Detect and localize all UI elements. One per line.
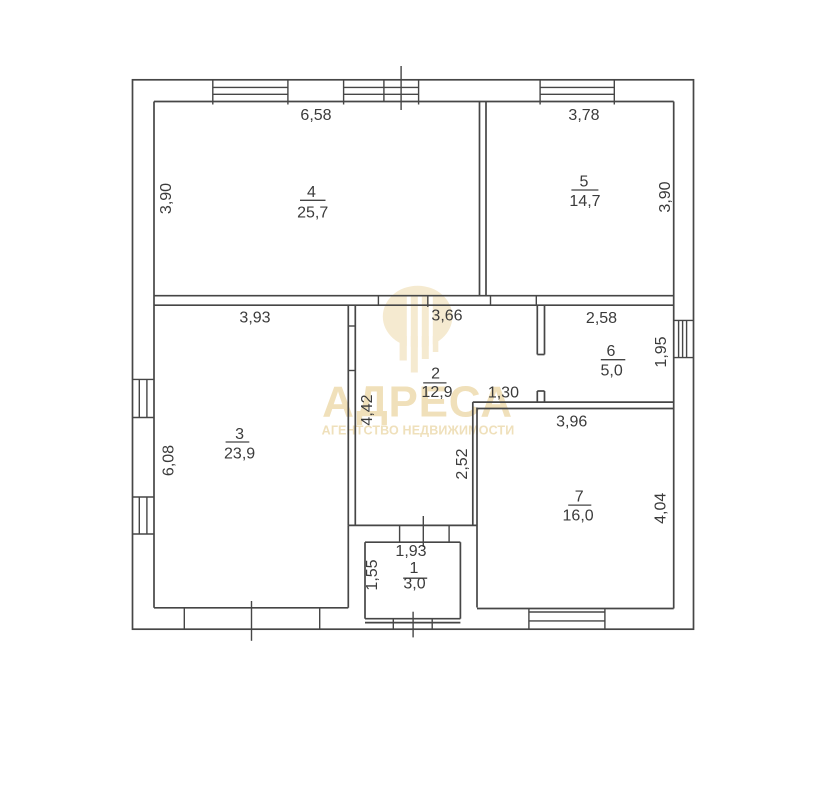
svg-text:2,58: 2,58 [586,310,617,327]
svg-text:1,30: 1,30 [488,385,519,402]
svg-text:АГЕНТСТВО НЕДВИЖИМОСТИ: АГЕНТСТВО НЕДВИЖИМОСТИ [322,424,515,438]
svg-text:1,93: 1,93 [395,543,426,560]
svg-text:5: 5 [580,174,589,191]
svg-text:16,0: 16,0 [563,508,594,525]
svg-text:3,0: 3,0 [403,576,425,593]
svg-text:3,90: 3,90 [158,183,175,214]
svg-text:6,08: 6,08 [161,445,178,476]
svg-text:2,52: 2,52 [454,448,471,479]
svg-text:6,58: 6,58 [300,107,331,124]
svg-text:5,0: 5,0 [600,363,622,380]
svg-text:4,42: 4,42 [359,394,376,425]
svg-text:14,7: 14,7 [569,193,600,210]
svg-text:3,90: 3,90 [657,181,674,212]
svg-text:3,78: 3,78 [568,107,599,124]
svg-text:3,93: 3,93 [239,310,270,327]
svg-text:2: 2 [431,366,440,383]
svg-text:4: 4 [307,184,316,201]
svg-text:25,7: 25,7 [297,205,328,222]
svg-text:3,96: 3,96 [556,414,587,431]
svg-text:12,9: 12,9 [421,384,452,401]
svg-text:4,04: 4,04 [653,493,670,524]
svg-text:6: 6 [606,343,615,360]
svg-text:1,95: 1,95 [653,336,670,367]
svg-text:3,66: 3,66 [431,308,462,325]
svg-text:7: 7 [575,489,584,506]
svg-text:1,55: 1,55 [364,559,381,590]
svg-text:3: 3 [235,426,244,443]
svg-text:23,9: 23,9 [224,446,255,463]
